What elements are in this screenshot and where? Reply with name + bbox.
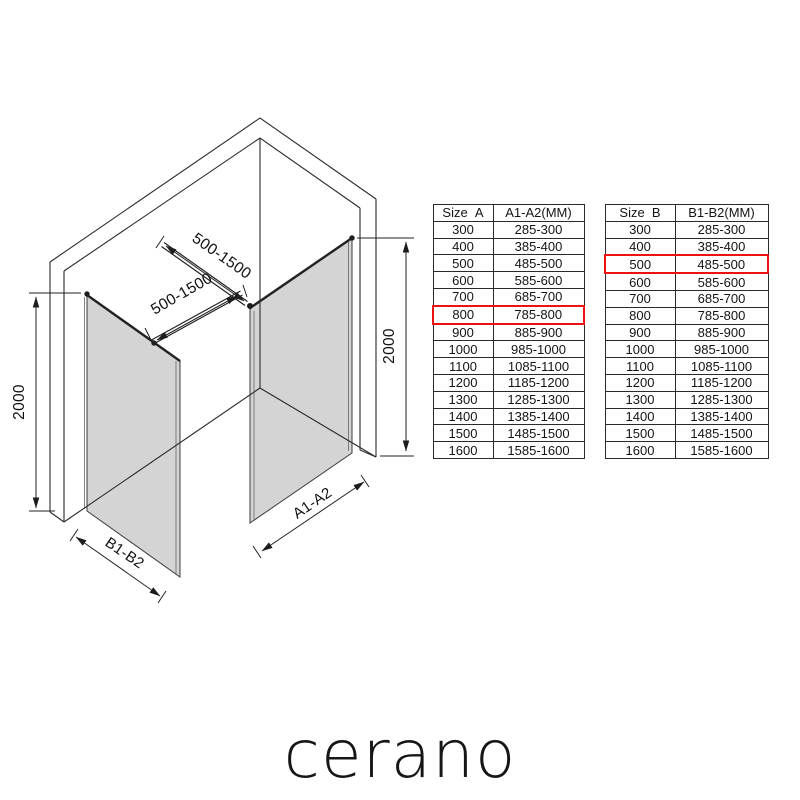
table-cell: 900	[433, 324, 493, 341]
table-row: 15001485-1500	[605, 425, 768, 442]
table-row: 500485-500	[433, 255, 584, 272]
table-cell: 1185-1200	[493, 374, 584, 391]
table-cell: 1285-1300	[493, 391, 584, 408]
table-cell: 1285-1300	[675, 391, 768, 408]
table-cell: 385-400	[493, 238, 584, 255]
table-cell: 700	[433, 288, 493, 305]
table-cell: 700	[605, 290, 675, 307]
bar-b-range-label: 500-1500	[148, 270, 215, 319]
table-row: 1000985-1000	[605, 341, 768, 358]
table-row: 800785-800	[605, 307, 768, 324]
table-cell: 1185-1200	[675, 374, 768, 391]
table-cell: 1085-1100	[493, 358, 584, 375]
table-cell: 1385-1400	[675, 408, 768, 425]
table-cell: 1100	[605, 358, 675, 375]
table-row: 900885-900	[433, 324, 584, 341]
table-row-highlighted: 500485-500	[605, 255, 768, 273]
table-cell: 900	[605, 324, 675, 341]
table-cell: 1300	[605, 391, 675, 408]
table-cell: 1000	[605, 341, 675, 358]
table-cell: 1385-1400	[493, 408, 584, 425]
glass-panel-a	[250, 238, 352, 523]
table-cell: 1200	[605, 374, 675, 391]
column-header: Size A	[433, 205, 493, 222]
column-header: B1-B2(MM)	[675, 205, 768, 222]
height-left-label: 2000	[11, 384, 28, 420]
table-row: 14001385-1400	[433, 408, 584, 425]
table-cell: 285-300	[493, 221, 584, 238]
table-cell: 585-600	[493, 272, 584, 289]
table-cell: 600	[605, 273, 675, 290]
table-cell: 400	[433, 238, 493, 255]
table-cell: 885-900	[493, 324, 584, 341]
table-row: 1000985-1000	[433, 341, 584, 358]
table-row: 600585-600	[605, 273, 768, 290]
table-a-header-row: Size AA1-A2(MM)	[433, 205, 584, 222]
table-cell: 385-400	[675, 238, 768, 255]
table-cell: 1485-1500	[493, 425, 584, 442]
table-row: 13001285-1300	[433, 391, 584, 408]
dim-height-left	[29, 293, 81, 511]
table-row: 12001185-1200	[433, 374, 584, 391]
table-cell: 1400	[433, 408, 493, 425]
table-cell: 1585-1600	[675, 442, 768, 459]
page: 500-1500 500-1500 2000 2000 A1-A2 B1-B2 …	[0, 0, 800, 800]
table-row: 14001385-1400	[605, 408, 768, 425]
table-cell: 400	[605, 238, 675, 255]
table-cell: 1100	[433, 358, 493, 375]
table-cell: 1500	[605, 425, 675, 442]
table-cell: 485-500	[675, 255, 768, 273]
table-cell: 785-800	[675, 307, 768, 324]
table-cell: 1400	[605, 408, 675, 425]
table-row: 300285-300	[605, 221, 768, 238]
table-cell: 685-700	[493, 288, 584, 305]
table-row: 900885-900	[605, 324, 768, 341]
table-cell: 1600	[605, 442, 675, 459]
size-table-a: Size AA1-A2(MM) 300285-300400385-4005004…	[432, 204, 585, 459]
height-right-label: 2000	[381, 328, 398, 364]
table-cell: 500	[433, 255, 493, 272]
table-row: 16001585-1600	[605, 442, 768, 459]
table-row: 11001085-1100	[433, 358, 584, 375]
table-cell: 985-1000	[493, 341, 584, 358]
column-header: A1-A2(MM)	[493, 205, 584, 222]
column-header: Size B	[605, 205, 675, 222]
table-cell: 300	[433, 221, 493, 238]
table-cell: 600	[433, 272, 493, 289]
table-row: 12001185-1200	[605, 374, 768, 391]
table-cell: 1500	[433, 425, 493, 442]
table-cell: 1585-1600	[493, 442, 584, 459]
table-row-highlighted: 800785-800	[433, 306, 584, 324]
table-row: 700685-700	[433, 288, 584, 305]
table-row: 11001085-1100	[605, 358, 768, 375]
table-cell: 800	[433, 306, 493, 324]
table-row: 15001485-1500	[433, 425, 584, 442]
table-cell: 285-300	[675, 221, 768, 238]
table-cell: 485-500	[493, 255, 584, 272]
table-row: 400385-400	[605, 238, 768, 255]
table-row: 400385-400	[433, 238, 584, 255]
table-cell: 985-1000	[675, 341, 768, 358]
table-cell: 585-600	[675, 273, 768, 290]
table-cell: 785-800	[493, 306, 584, 324]
table-cell: 1485-1500	[675, 425, 768, 442]
table-cell: 1600	[433, 442, 493, 459]
size-table-b: Size BB1-B2(MM) 300285-300400385-4005004…	[604, 204, 769, 459]
table-cell: 1300	[433, 391, 493, 408]
table-cell: 300	[605, 221, 675, 238]
table-row: 600585-600	[433, 272, 584, 289]
table-row: 16001585-1600	[433, 442, 584, 459]
table-cell: 1085-1100	[675, 358, 768, 375]
table-row: 300285-300	[433, 221, 584, 238]
table-row: 700685-700	[605, 290, 768, 307]
table-row: 13001285-1300	[605, 391, 768, 408]
brand-logo: cerano	[0, 708, 800, 800]
table-b-header-row: Size BB1-B2(MM)	[605, 205, 768, 222]
table-cell: 800	[605, 307, 675, 324]
table-cell: 1000	[433, 341, 493, 358]
table-cell: 1200	[433, 374, 493, 391]
table-cell: 685-700	[675, 290, 768, 307]
table-cell: 885-900	[675, 324, 768, 341]
table-cell: 500	[605, 255, 675, 273]
